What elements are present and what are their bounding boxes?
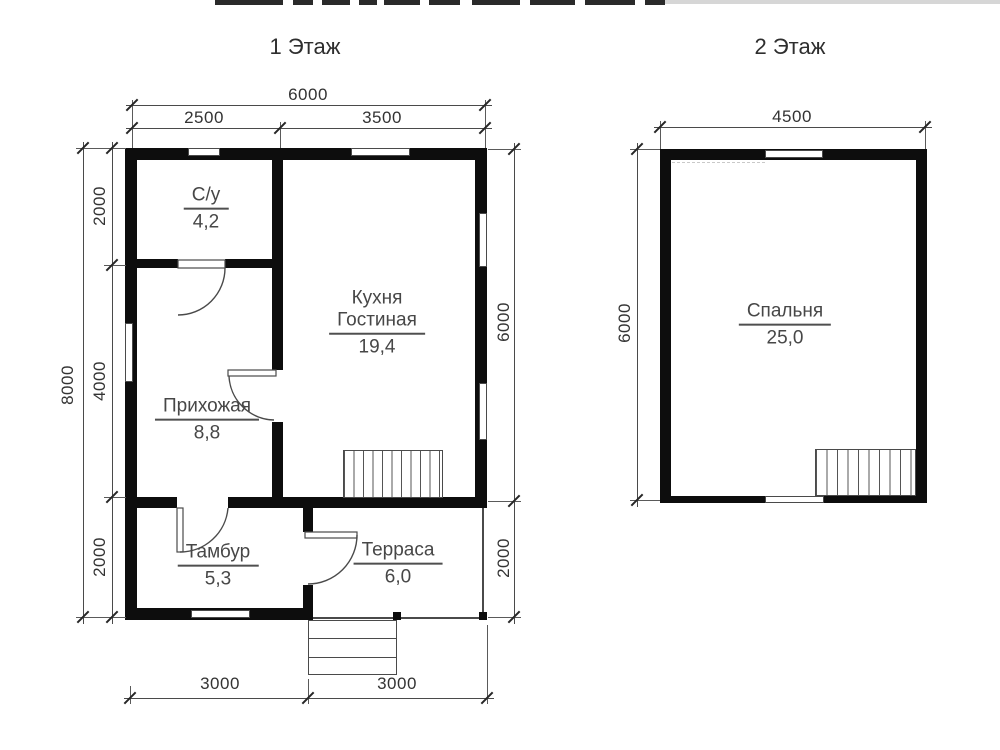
dim-line-top-total [126,105,492,106]
dim-left-middle: 4000 [90,361,110,401]
dim-line-left-total [83,142,84,624]
room-name: Прихожая [155,396,259,421]
room-name: С/у [184,185,229,210]
room-area: 6,0 [354,567,443,589]
dim-f2-left: 6000 [615,303,635,343]
dim-top-left: 2500 [184,108,224,128]
dim-line-f2-top [654,127,932,128]
room-label-vestibule: Тамбур 5,3 [178,542,259,591]
door-swings-overlay [0,0,1000,750]
room-area: 19,4 [329,336,425,358]
dim-line-right [514,143,515,624]
room-label-bedroom: Спальня 25,0 [739,301,831,350]
room-label-kitchen: Кухня Гостиная 19,4 [329,288,425,359]
door-arc-bathroom [178,268,225,315]
room-area: 5,3 [178,569,259,591]
room-name: Терраса [354,540,443,565]
ext-line [487,625,488,704]
floorplan-canvas: 1 Этаж 2 Этаж [0,0,1000,750]
dim-line-top-sub [126,128,492,129]
ext-line [488,617,521,618]
room-area: 8,8 [155,423,259,445]
dim-left-bottom: 2000 [90,537,110,577]
dim-right-top: 6000 [494,302,514,342]
dim-top-right: 3500 [362,108,402,128]
dim-line-left-sub [112,142,113,624]
ext-line [488,501,521,502]
door-leaf-hallway [228,370,276,376]
room-label-hallway: Прихожая 8,8 [155,396,259,445]
room-label-bathroom: С/у 4,2 [184,185,229,234]
door-leaf-terrace [305,532,357,538]
room-area: 25,0 [739,328,831,350]
door-leaf-bathroom [178,260,225,268]
room-name-line1: Кухня [329,288,425,310]
room-name: Тамбур [178,542,259,567]
dim-line-f2-left [637,143,638,507]
dim-left-total: 8000 [58,365,78,405]
door-arc-terrace [308,535,357,584]
dim-left-top: 2000 [90,186,110,226]
room-name: Спальня [739,301,831,326]
dim-right-bottom: 2000 [494,538,514,578]
room-label-terrace: Терраса 6,0 [354,540,443,589]
dim-f2-top: 4500 [772,107,812,127]
ext-line [308,679,309,704]
ext-line [104,497,126,498]
room-name-line2: Гостиная [329,310,425,335]
room-area: 4,2 [184,212,229,234]
dim-bottom-left: 3000 [200,674,240,694]
ext-line [104,265,126,266]
ext-line [488,149,521,150]
dim-top-total: 6000 [288,85,328,105]
dim-bottom-right: 3000 [377,674,417,694]
